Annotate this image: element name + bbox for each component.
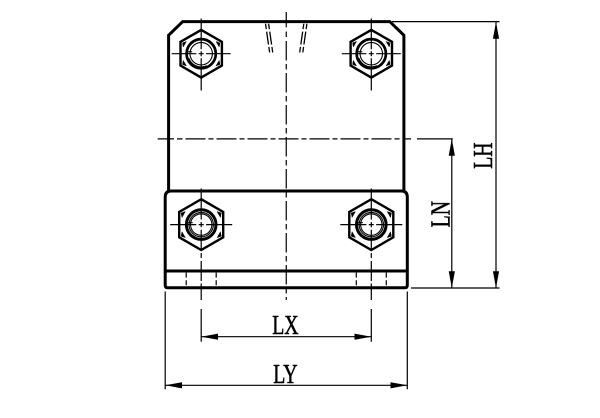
svg-text:LX: LX: [272, 311, 298, 341]
svg-text:LN: LN: [426, 201, 456, 227]
svg-text:LY: LY: [273, 360, 297, 390]
svg-text:LH: LH: [469, 142, 499, 168]
